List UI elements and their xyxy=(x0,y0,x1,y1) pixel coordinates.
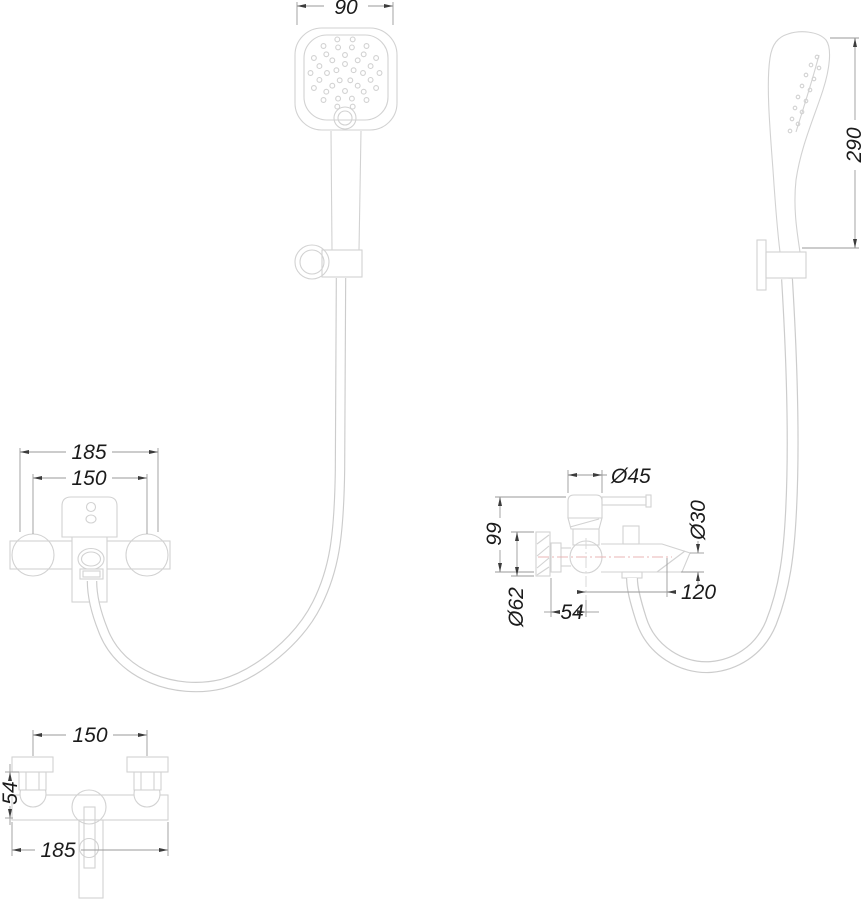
nut-right xyxy=(134,772,161,790)
lever-end-cap xyxy=(646,495,651,507)
wall-holder-ring-inner xyxy=(300,250,324,274)
spray-nozzles-front xyxy=(308,37,382,109)
outline-layer xyxy=(10,28,830,898)
lever-knob-top xyxy=(80,839,99,858)
holder-bracket-side xyxy=(766,252,806,278)
dim-top-overall-label: 185 xyxy=(40,839,75,862)
dim-head-width-label: 90 xyxy=(334,0,358,19)
arrowhead-layer xyxy=(8,4,857,852)
dim-front-centers-label: 150 xyxy=(71,467,106,490)
dim-top-depth-label: 54 xyxy=(0,781,22,804)
spout-top xyxy=(79,820,103,898)
dim-handset-height-label: 290 xyxy=(843,127,863,163)
flange-top-left xyxy=(12,757,53,772)
mixer-top-view xyxy=(12,757,168,898)
taper-line xyxy=(570,519,599,527)
centerline-layer xyxy=(538,538,672,600)
flange-top-right xyxy=(127,757,168,772)
shower-hose-front-core xyxy=(92,278,341,687)
technical-drawing-page: 90 290 185 150 Ø45 99 Ø62 54 Ø30 120 150… xyxy=(0,0,863,900)
wall-holder-bracket xyxy=(322,250,362,277)
spout-side xyxy=(601,544,690,572)
diverter-knob-side xyxy=(623,526,639,544)
mode-button-inner xyxy=(338,111,352,125)
shower-hose-side-casing xyxy=(632,279,793,667)
hose-layer xyxy=(92,278,793,687)
dimension-line-layer xyxy=(5,2,859,856)
spout-tip-line xyxy=(657,551,685,572)
dim-body-height-label: 99 xyxy=(483,522,506,546)
dim-flange-diameter-label: Ø62 xyxy=(505,587,528,628)
dim-spout-diameter-label: Ø30 xyxy=(687,500,710,541)
dim-wall-depth-label: 54 xyxy=(560,601,583,624)
lever-top xyxy=(84,807,95,868)
shower-hose-side-core xyxy=(632,279,793,667)
handle-left-edge xyxy=(331,131,332,250)
shower-mixer-technical-drawing: 90 290 185 150 Ø45 99 Ø62 54 Ø30 120 150… xyxy=(0,0,863,900)
lever-handle-side xyxy=(602,497,646,505)
hose-connector-side xyxy=(622,572,642,578)
cartridge-side xyxy=(568,495,602,518)
nut-left xyxy=(19,772,46,790)
shower-head-front xyxy=(295,28,397,130)
handset-face-inner-line xyxy=(796,55,819,132)
dim-top-centers-label: 150 xyxy=(72,724,107,747)
handset-side-view xyxy=(757,32,830,290)
wall-flange-side xyxy=(536,532,550,576)
dim-spout-reach-label: 120 xyxy=(681,581,716,604)
wall-flange-left xyxy=(12,534,54,576)
handle-right-edge xyxy=(359,131,361,250)
handset-side-outline xyxy=(768,32,829,252)
handset-front-view xyxy=(295,28,397,279)
dimension-text-layer: 90 290 185 150 Ø45 99 Ø62 54 Ø30 120 150… xyxy=(0,0,863,862)
mode-button-outer xyxy=(334,107,356,129)
dim-front-overall-label: 185 xyxy=(71,441,106,464)
dim-cartridge-diameter-label: Ø45 xyxy=(610,465,651,488)
wall-flange-right xyxy=(126,534,168,576)
holder-wall-flange-side xyxy=(757,240,766,290)
